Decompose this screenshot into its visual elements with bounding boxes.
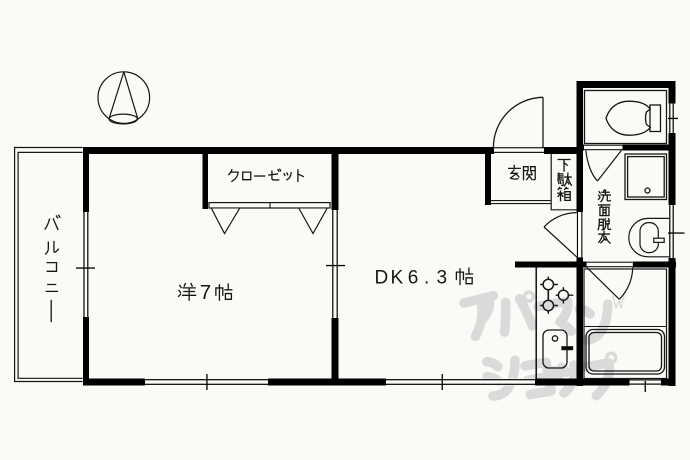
svg-text:D: D [375, 268, 389, 289]
svg-text:.: . [424, 268, 429, 289]
svg-text:3: 3 [437, 268, 448, 289]
svg-text:K: K [391, 268, 404, 289]
svg-text:7: 7 [200, 281, 211, 304]
svg-text:6: 6 [408, 268, 419, 289]
